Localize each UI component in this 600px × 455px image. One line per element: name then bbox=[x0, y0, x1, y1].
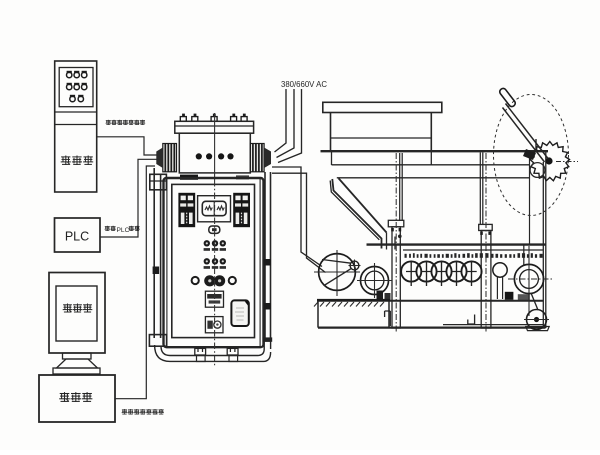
svg-text:PLC: PLC bbox=[117, 227, 130, 234]
svg-text:PLC: PLC bbox=[65, 230, 89, 244]
svg-text:380/660V AC: 380/660V AC bbox=[281, 80, 327, 89]
